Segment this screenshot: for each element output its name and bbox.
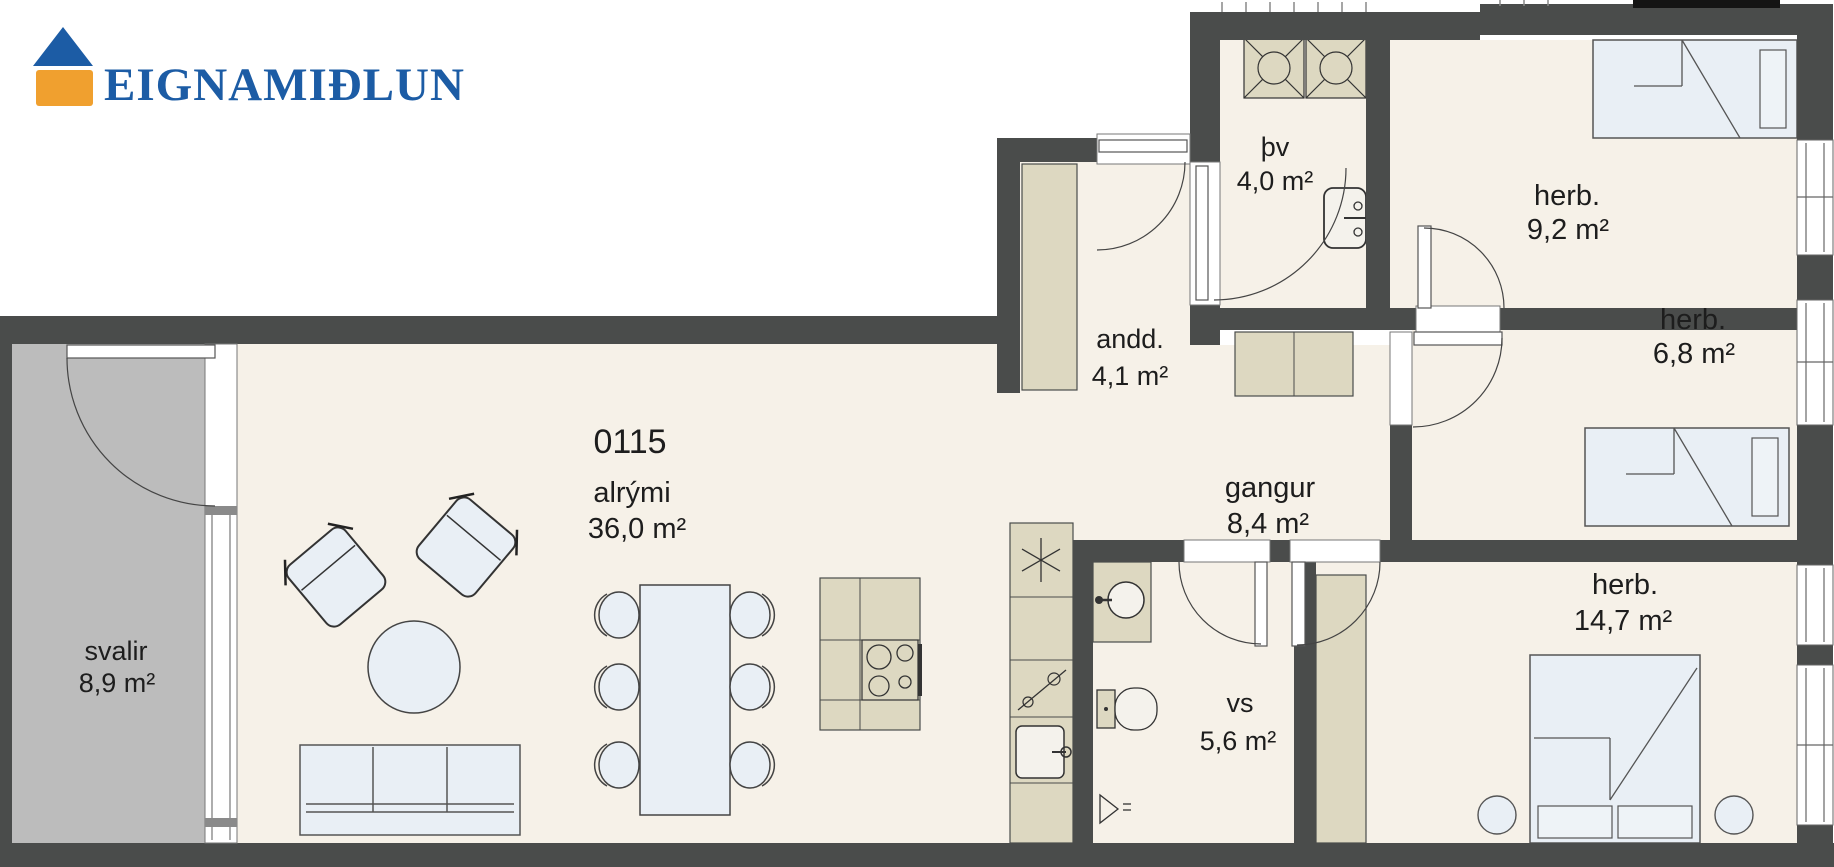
dryer-icon (1306, 38, 1366, 98)
wall-entry-top (997, 138, 1097, 162)
label-thv-name: þv (1261, 132, 1290, 162)
window-bedroom2 (1797, 300, 1833, 425)
wall-laundry-right (1366, 12, 1390, 330)
label-svalir-name: svalir (84, 636, 147, 666)
wall-top-left (0, 316, 1020, 344)
wall-balcony-left (0, 316, 12, 867)
entry-closet (1022, 164, 1077, 390)
wall-right-4 (1797, 645, 1833, 665)
brand-name: EIGNAMIÐLUN (104, 59, 465, 111)
coffee-table (368, 621, 460, 713)
label-herb68-name: herb. (1660, 304, 1726, 336)
pillow (1752, 438, 1778, 516)
pillow (1538, 806, 1612, 838)
label-vs-name: vs (1227, 688, 1254, 718)
window-bedroom1 (1797, 140, 1833, 255)
dining-table (595, 585, 775, 815)
window-bedroom3-small (1797, 565, 1833, 645)
wall-right-3 (1797, 425, 1833, 565)
label-vs-area: 5,6 m² (1200, 726, 1277, 756)
floorplan-page: svalir 8,9 m² 0115 alrými 36,0 m² andd. … (0, 0, 1834, 867)
label-alrymi-name: alrými (593, 477, 670, 509)
nightstand (1715, 796, 1753, 834)
wall-hall-bottom-b (1270, 540, 1290, 562)
balcony-floor (12, 344, 205, 843)
bedroom2-bed (1585, 428, 1789, 526)
wall-top-cap (1633, 0, 1780, 8)
kitchen-sink (1016, 726, 1071, 778)
toilet-icon (1097, 688, 1157, 730)
label-thv-area: 4,0 m² (1237, 166, 1314, 196)
label-herb147-name: herb. (1592, 569, 1658, 601)
bedroom1-bed (1593, 36, 1821, 138)
wall-bedroom1-bottom-left (1214, 308, 1416, 330)
wall-entry-left (997, 138, 1020, 393)
kitchen-counter (1010, 523, 1073, 843)
wall-right-1 (1797, 12, 1833, 140)
kitchen-island (820, 578, 922, 730)
wall-bathroom-left (1073, 540, 1093, 843)
washing-machine-icon (1244, 38, 1304, 98)
pillow (1760, 50, 1786, 128)
cooktop (862, 640, 922, 700)
label-unit-id: 0115 (593, 423, 666, 461)
oven-handle (918, 644, 922, 696)
wall-hall-bottom-c (1380, 540, 1412, 562)
wall-right-2 (1797, 255, 1833, 300)
label-herb92-area: 9,2 m² (1527, 214, 1610, 246)
wall-top-middle (1190, 12, 1480, 40)
balcony-glass-wall (205, 344, 237, 843)
label-gangur-area: 8,4 m² (1227, 508, 1310, 540)
label-herb147-area: 14,7 m² (1574, 605, 1673, 637)
logo-house-roof-icon (33, 27, 93, 66)
brand-logo: EIGNAMIÐLUN (33, 27, 465, 111)
basin-icon (1108, 582, 1144, 618)
logo-house-body-icon (36, 70, 93, 106)
sofa (300, 745, 520, 835)
nightstand (1478, 796, 1516, 834)
label-andd-area: 4,1 m² (1092, 361, 1169, 391)
hall-closet (1235, 332, 1353, 396)
wall-right-5 (1797, 825, 1833, 867)
label-herb92-name: herb. (1534, 180, 1600, 212)
window-bedroom3-large (1797, 665, 1833, 825)
floorplan-drawing: svalir 8,9 m² 0115 alrými 36,0 m² andd. … (0, 0, 1834, 867)
label-herb68-area: 6,8 m² (1653, 338, 1736, 370)
label-gangur-name: gangur (1225, 472, 1316, 504)
wall-bedroom2-3-divider (1412, 540, 1833, 562)
wall-bottom (0, 843, 1834, 867)
pillow (1618, 806, 1692, 838)
label-alrymi-area: 36,0 m² (588, 513, 687, 545)
label-svalir-area: 8,9 m² (79, 668, 156, 698)
bedroom3-wardrobe (1316, 575, 1366, 843)
wall-top-right (1480, 4, 1833, 35)
door-leaf (67, 345, 215, 358)
label-andd-name: andd. (1096, 324, 1164, 354)
laundry-sink (1324, 188, 1366, 248)
